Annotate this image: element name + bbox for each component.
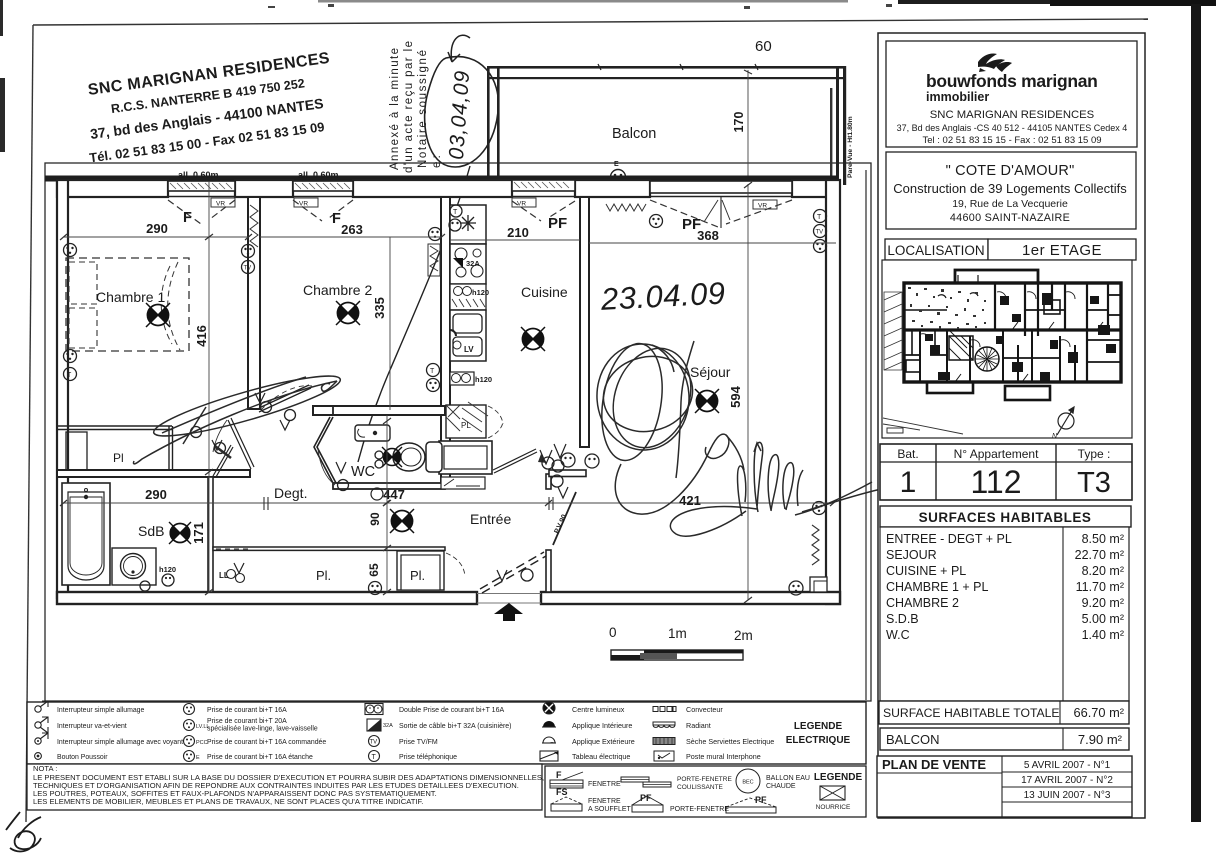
svg-text:PORTE-FENETRE: PORTE-FENETRE	[677, 776, 732, 783]
svg-text:0: 0	[609, 625, 617, 640]
svg-text:TV: TV	[370, 740, 378, 746]
svg-text:1.40 m²: 1.40 m²	[1082, 628, 1124, 642]
svg-text:Sortie de câble bi+T 32A (cuis: Sortie de câble bi+T 32A (cuisinière)	[399, 723, 512, 730]
svg-text:421: 421	[679, 493, 701, 508]
svg-text:immobilier: immobilier	[926, 90, 989, 104]
svg-text:Interrupteur simple allumage: Interrupteur simple allumage	[57, 707, 144, 714]
svg-text:11.70 m²: 11.70 m²	[1076, 580, 1124, 594]
svg-text:44600 SAINT-NAZAIRE: 44600 SAINT-NAZAIRE	[950, 212, 1070, 224]
svg-text:E: E	[614, 161, 619, 168]
svg-text:F: F	[556, 770, 562, 780]
svg-text:290: 290	[145, 487, 167, 502]
svg-text:W.C: W.C	[886, 628, 910, 642]
svg-text:23.04.09: 23.04.09	[599, 275, 726, 317]
svg-text:T: T	[453, 209, 458, 216]
svg-text:CHAMBRE 1 + PL: CHAMBRE 1 + PL	[886, 580, 989, 594]
svg-text:Tableau électrique: Tableau électrique	[572, 752, 630, 761]
svg-text:2m: 2m	[734, 628, 753, 643]
svg-text:1er ETAGE: 1er ETAGE	[1022, 242, 1102, 259]
svg-text:N° Appartement: N° Appartement	[954, 447, 1040, 461]
svg-text:290: 290	[146, 221, 168, 236]
svg-text:594: 594	[728, 385, 743, 407]
svg-text:PLAN DE VENTE: PLAN DE VENTE	[882, 757, 986, 772]
svg-text:VR: VR	[758, 203, 767, 210]
svg-text:Prise de courant bi+T 20A: Prise de courant bi+T 20A	[207, 718, 287, 725]
svg-text:Pl: Pl	[113, 451, 124, 465]
svg-text:Type :: Type :	[1078, 447, 1111, 461]
svg-text:FENETRE: FENETRE	[588, 798, 621, 805]
svg-text:8.50 m²: 8.50 m²	[1082, 532, 1124, 546]
svg-text:VR: VR	[299, 201, 308, 208]
svg-text:37, Bd des Anglais -CS 40 512: 37, Bd des Anglais -CS 40 512 - 44105 NA…	[897, 123, 1128, 133]
svg-text:Pl.: Pl.	[410, 568, 425, 583]
svg-text:65: 65	[367, 563, 381, 577]
svg-text:Séjour: Séjour	[690, 364, 731, 380]
svg-text:h120: h120	[472, 288, 489, 297]
svg-text:60: 60	[755, 38, 772, 55]
svg-text:A SOUFFLET: A SOUFFLET	[588, 806, 632, 813]
svg-text:Chambre 1: Chambre 1	[96, 289, 165, 305]
svg-text:22.70 m²: 22.70 m²	[1075, 548, 1124, 562]
svg-text:BALCON: BALCON	[886, 732, 939, 747]
svg-text:Annexé à la minute: Annexé à la minute	[389, 48, 401, 170]
svg-text:416: 416	[194, 325, 209, 347]
svg-text:T: T	[67, 372, 72, 379]
svg-text:S.D.B: S.D.B	[886, 612, 919, 626]
svg-text:66.70 m²: 66.70 m²	[1073, 705, 1124, 720]
svg-text:447: 447	[383, 487, 405, 502]
svg-text:T: T	[817, 214, 822, 221]
svg-text:TV: TV	[816, 230, 824, 236]
svg-text:17 AVRIL 2007 - N°2: 17 AVRIL 2007 - N°2	[1021, 775, 1113, 786]
svg-text:e :: e :	[431, 155, 443, 168]
svg-text:NOURRICE: NOURRICE	[816, 804, 851, 811]
svg-text:h120: h120	[475, 375, 492, 384]
svg-text:VR: VR	[216, 201, 225, 208]
svg-text:Double Prise de courant bi+T 1: Double Prise de courant bi+T 16A	[399, 707, 504, 714]
svg-text:112: 112	[970, 464, 1021, 500]
svg-text:T: T	[430, 368, 435, 375]
svg-text:" COTE D'AMOUR": " COTE D'AMOUR"	[946, 163, 1075, 179]
svg-text:Degt.: Degt.	[274, 485, 307, 501]
svg-text:SdB: SdB	[138, 523, 164, 539]
svg-text:VR: VR	[517, 201, 526, 208]
svg-text:Cuisine: Cuisine	[521, 284, 568, 300]
svg-text:CHAUDE: CHAUDE	[766, 783, 796, 790]
svg-text:Poste mural Interphone: Poste mural Interphone	[686, 752, 761, 761]
svg-text:T3: T3	[1077, 467, 1111, 499]
svg-text:ELECTRIQUE: ELECTRIQUE	[786, 735, 851, 746]
svg-text:Radiant: Radiant	[686, 721, 711, 730]
svg-text:F: F	[183, 210, 192, 226]
svg-text:SEJOUR: SEJOUR	[886, 548, 937, 562]
svg-text:BEC: BEC	[742, 780, 753, 786]
svg-text:Balcon: Balcon	[612, 126, 656, 142]
svg-text:F: F	[332, 211, 341, 227]
svg-text:Tel : 02 51 83 15 15 - Fax : 0: Tel : 02 51 83 15 15 - Fax : 02 51 83 15…	[922, 135, 1101, 146]
svg-text:CUISINE + PL: CUISINE + PL	[886, 564, 966, 578]
svg-text:PL: PL	[461, 421, 471, 430]
svg-text:SURFACE HABITABLE TOTALE: SURFACE HABITABLE TOTALE	[883, 706, 1060, 720]
svg-text:32A: 32A	[466, 259, 480, 268]
svg-text:5 AVRIL 2007 - N°1: 5 AVRIL 2007 - N°1	[1024, 760, 1111, 771]
svg-text:1: 1	[900, 466, 917, 499]
svg-text:7.90 m²: 7.90 m²	[1078, 732, 1123, 747]
svg-text:263: 263	[341, 222, 363, 237]
svg-text:Convecteur: Convecteur	[686, 705, 723, 714]
svg-text:03,04,09: 03,04,09	[445, 69, 474, 160]
svg-text:Pl.: Pl.	[316, 568, 331, 583]
svg-text:Interrupteur va-et-vient: Interrupteur va-et-vient	[57, 723, 127, 730]
svg-text:PORTE-FENETRE: PORTE-FENETRE	[670, 806, 729, 813]
svg-text:335: 335	[372, 297, 387, 319]
svg-text:SURFACES HABITABLES: SURFACES HABITABLES	[919, 510, 1092, 525]
svg-text:Prise TV/FM: Prise TV/FM	[399, 739, 438, 746]
svg-text:LEGENDE: LEGENDE	[794, 721, 843, 732]
svg-text:E: E	[196, 755, 200, 761]
svg-text:1m: 1m	[668, 626, 687, 641]
svg-text:8.20 m²: 8.20 m²	[1082, 564, 1124, 578]
svg-text:spécialisée lave-linge, lave-v: spécialisée lave-linge, lave-vaisselle	[207, 726, 318, 733]
svg-text:Pare-Vue - Ht1.80m: Pare-Vue - Ht1.80m	[847, 116, 854, 178]
svg-text:210: 210	[507, 225, 529, 240]
svg-text:13 JUIN 2007 - N°3: 13 JUIN 2007 - N°3	[1024, 790, 1111, 801]
svg-text:COULISSANTE: COULISSANTE	[677, 784, 724, 791]
svg-text:all. 0.60m: all. 0.60m	[298, 170, 339, 180]
svg-text:170: 170	[732, 112, 746, 133]
svg-text:368: 368	[697, 228, 719, 243]
svg-text:Entrée: Entrée	[470, 511, 511, 527]
svg-text:Notaire soussigné: Notaire soussigné	[417, 50, 429, 168]
svg-text:LES ELEMENTS DE MOBILIER, MEUB: LES ELEMENTS DE MOBILIER, MEUBLES ET PLA…	[33, 797, 423, 806]
svg-text:LV: LV	[464, 345, 474, 354]
svg-text:LEGENDE: LEGENDE	[814, 772, 863, 783]
svg-text:19, Rue de La Vecquerie: 19, Rue de La Vecquerie	[952, 198, 1068, 210]
svg-text:PF: PF	[548, 215, 567, 232]
svg-text:CHAMBRE 2: CHAMBRE 2	[886, 596, 959, 610]
svg-text:Bouton Poussoir: Bouton Poussoir	[57, 754, 108, 761]
svg-text:TV: TV	[244, 266, 252, 272]
svg-text:all. 0.60m: all. 0.60m	[178, 170, 219, 180]
svg-text:T: T	[372, 754, 377, 761]
svg-text:BALLON EAU: BALLON EAU	[766, 775, 810, 782]
svg-text:Interrupteur simple allumage a: Interrupteur simple allumage avec voyant	[57, 739, 183, 746]
svg-text:Chambre 2: Chambre 2	[303, 282, 372, 298]
svg-text:32A: 32A	[383, 723, 393, 729]
svg-text:Prise téléphonique: Prise téléphonique	[399, 754, 457, 761]
svg-text:Bat.: Bat.	[897, 447, 918, 461]
svg-text:WC: WC	[351, 464, 375, 480]
svg-text:h120: h120	[159, 565, 176, 574]
svg-text:Prise de courant bi+T 16A étan: Prise de courant bi+T 16A étanche	[207, 754, 313, 761]
svg-text:9.20 m²: 9.20 m²	[1082, 596, 1124, 610]
svg-text:90: 90	[368, 512, 382, 526]
svg-text:SNC MARIGNAN RESIDENCES: SNC MARIGNAN RESIDENCES	[930, 109, 1095, 121]
svg-text:FENETRE: FENETRE	[588, 781, 621, 788]
svg-text:d'un acte reçu par le: d'un acte reçu par le	[403, 41, 415, 173]
svg-text:Applique Intérieure: Applique Intérieure	[572, 721, 632, 730]
svg-text:Construction de 39 Logements C: Construction de 39 Logements Collectifs	[893, 181, 1127, 196]
svg-text:Centre lumineux: Centre lumineux	[572, 705, 625, 714]
svg-text:Applique Extérieure: Applique Extérieure	[572, 737, 635, 746]
svg-text:bouwfonds marignan: bouwfonds marignan	[926, 71, 1098, 91]
svg-text:Prise de courant bi+T 16A: Prise de courant bi+T 16A	[207, 707, 287, 714]
svg-text:PCC: PCC	[196, 740, 208, 746]
svg-text:5.00 m²: 5.00 m²	[1082, 612, 1124, 626]
svg-text:171: 171	[191, 522, 206, 544]
svg-text:LOCALISATION: LOCALISATION	[887, 243, 984, 258]
svg-text:Prise de courant bi+T 16A comm: Prise de courant bi+T 16A commandée	[207, 739, 326, 746]
svg-text:NOTA :: NOTA :	[33, 764, 57, 773]
svg-text:ENTREE - DEGT + PL: ENTREE - DEGT + PL	[886, 532, 1012, 546]
svg-text:FS: FS	[556, 787, 568, 797]
svg-text:Sèche Serviettes Electrique: Sèche Serviettes Electrique	[686, 737, 774, 746]
svg-text:P.V 90: P.V 90	[553, 514, 568, 535]
